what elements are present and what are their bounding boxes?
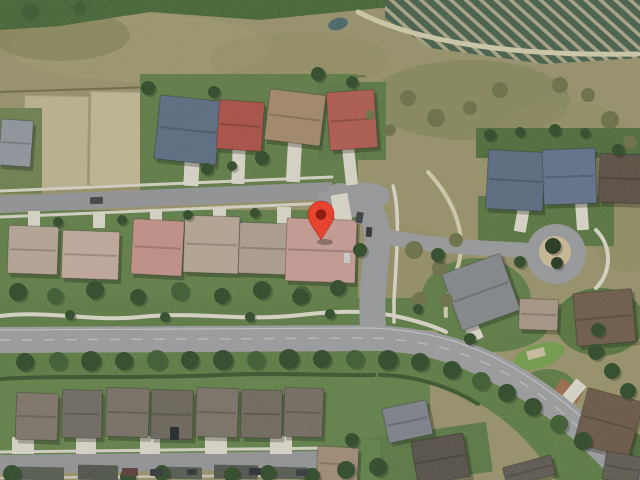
satellite-map-canvas (0, 0, 640, 480)
satellite-map-viewport[interactable] (0, 0, 640, 480)
